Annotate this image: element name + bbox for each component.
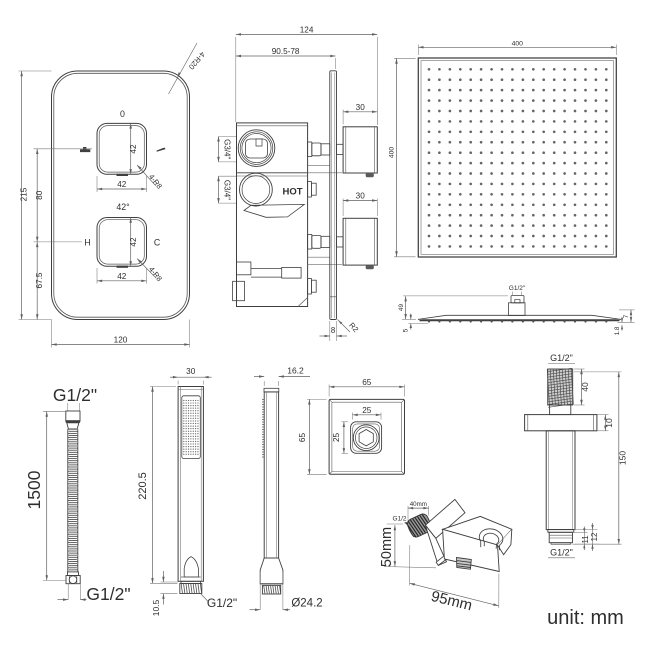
svg-text:124: 124 bbox=[300, 25, 314, 34]
svg-text:G1/2": G1/2" bbox=[53, 385, 97, 405]
svg-text:G1/2": G1/2" bbox=[550, 548, 573, 558]
svg-text:G3/4": G3/4" bbox=[223, 139, 232, 159]
svg-text:G3/4": G3/4" bbox=[223, 180, 232, 200]
svg-text:25: 25 bbox=[332, 433, 341, 443]
svg-text:67.5: 67.5 bbox=[35, 272, 44, 288]
svg-text:0: 0 bbox=[120, 109, 125, 119]
svg-text:G1/2": G1/2" bbox=[509, 285, 526, 292]
svg-text:42: 42 bbox=[129, 144, 138, 154]
svg-text:HOT: HOT bbox=[282, 187, 302, 198]
svg-text:80: 80 bbox=[35, 190, 44, 200]
svg-text:150: 150 bbox=[617, 451, 627, 465]
svg-text:42°: 42° bbox=[116, 202, 129, 212]
svg-text:400: 400 bbox=[512, 40, 524, 47]
svg-text:50mm: 50mm bbox=[379, 527, 395, 567]
svg-text:16.2: 16.2 bbox=[287, 366, 304, 376]
svg-text:215: 215 bbox=[20, 187, 29, 201]
svg-text:220.5: 220.5 bbox=[137, 472, 149, 500]
svg-text:7: 7 bbox=[623, 314, 630, 318]
svg-text:42: 42 bbox=[129, 237, 138, 247]
svg-text:49: 49 bbox=[398, 304, 405, 312]
svg-text:unit: mm: unit: mm bbox=[547, 607, 624, 629]
svg-text:25: 25 bbox=[362, 406, 372, 415]
svg-text:G1/2": G1/2" bbox=[86, 584, 130, 604]
svg-text:40: 40 bbox=[580, 382, 590, 392]
svg-text:30: 30 bbox=[186, 367, 196, 376]
svg-text:90.5-78: 90.5-78 bbox=[272, 47, 300, 56]
svg-text:12: 12 bbox=[590, 533, 599, 542]
svg-text:1500: 1500 bbox=[24, 470, 44, 509]
svg-text:Ø24.2: Ø24.2 bbox=[291, 598, 322, 610]
svg-text:5: 5 bbox=[403, 328, 410, 332]
svg-text:10.5: 10.5 bbox=[151, 599, 161, 616]
svg-text:42: 42 bbox=[117, 180, 127, 189]
svg-text:40mm: 40mm bbox=[410, 501, 427, 508]
svg-text:400: 400 bbox=[388, 147, 395, 159]
svg-text:G1/2": G1/2" bbox=[207, 596, 237, 610]
svg-text:30: 30 bbox=[356, 192, 366, 201]
svg-text:11: 11 bbox=[581, 535, 590, 543]
svg-text:10: 10 bbox=[604, 418, 614, 428]
svg-text:65: 65 bbox=[362, 378, 372, 387]
svg-text:8: 8 bbox=[331, 326, 335, 335]
svg-text:65: 65 bbox=[298, 433, 307, 443]
svg-text:1.8: 1.8 bbox=[614, 326, 621, 335]
svg-text:30: 30 bbox=[356, 103, 366, 112]
svg-text:H: H bbox=[84, 237, 90, 247]
svg-text:120: 120 bbox=[114, 336, 128, 345]
svg-text:G1/2: G1/2 bbox=[392, 516, 406, 523]
svg-text:42: 42 bbox=[117, 272, 127, 281]
svg-text:G1/2": G1/2" bbox=[550, 353, 573, 363]
svg-text:C: C bbox=[154, 237, 161, 247]
